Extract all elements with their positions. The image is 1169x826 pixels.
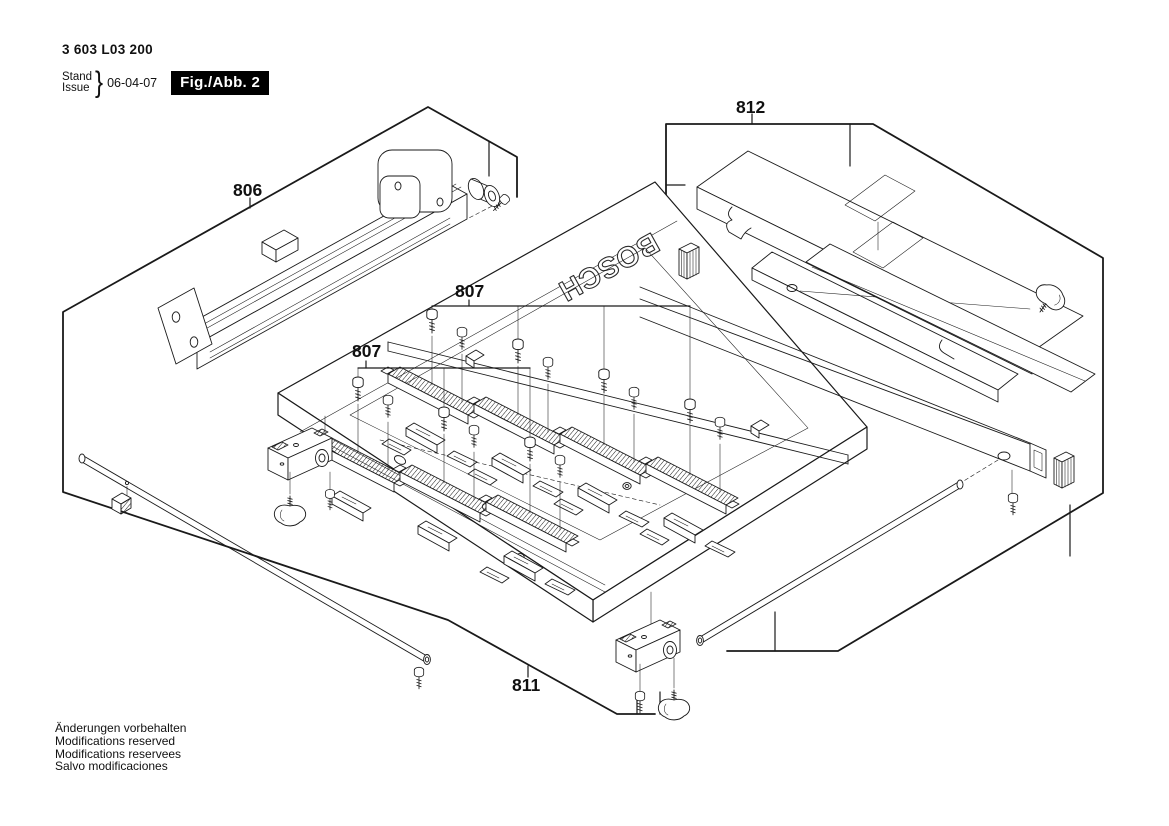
callout-807-upper: 807: [455, 281, 484, 301]
rod-clip: [112, 481, 131, 514]
screw-rod-left: [414, 667, 423, 689]
wing-nut-right: [658, 690, 689, 720]
end-cap-left: [679, 243, 699, 279]
exploded-diagram: BOSCH: [0, 0, 1169, 826]
clamp-right: [616, 620, 680, 672]
roller-cylinder: [465, 176, 502, 209]
clamp-left: [268, 428, 332, 480]
end-cap-right: [1054, 452, 1074, 488]
callout-811: 811: [512, 675, 540, 695]
callout-812: 812: [736, 97, 765, 117]
callout-806: 806: [233, 180, 262, 200]
screw-tube: [1008, 493, 1017, 515]
rod-left: [79, 454, 430, 665]
callout-807-lower: 807: [352, 341, 381, 361]
wing-nut-left: [274, 496, 305, 526]
